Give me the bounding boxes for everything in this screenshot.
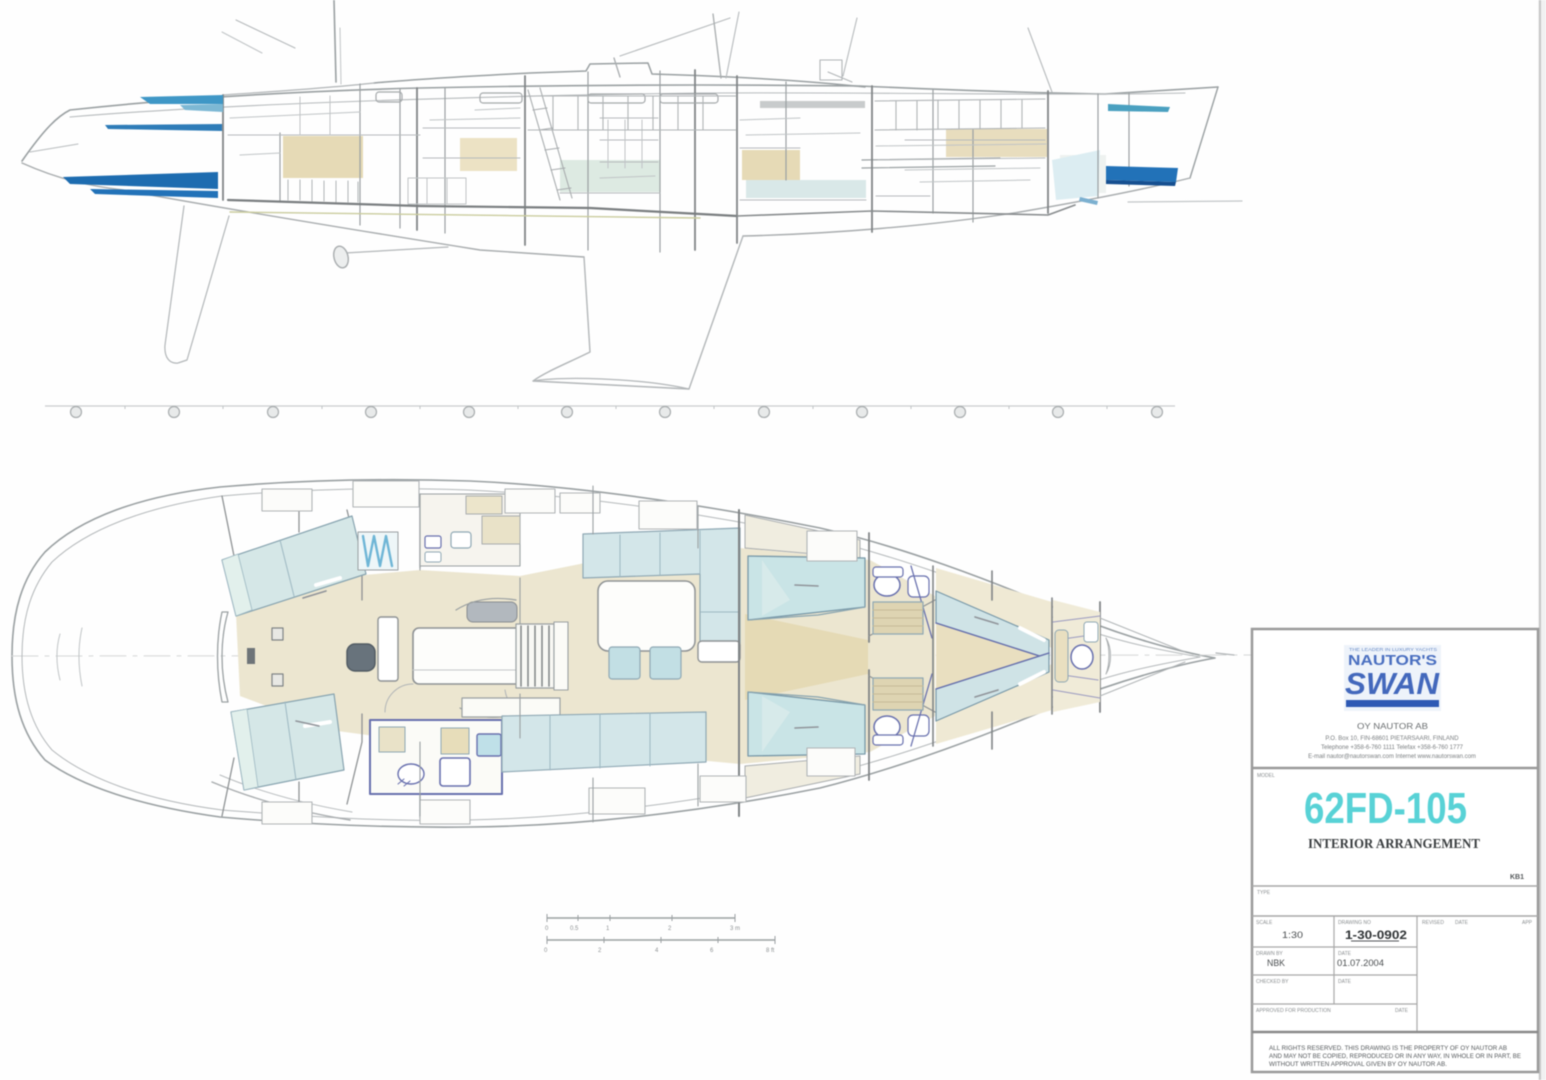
svg-text:SWAN: SWAN: [1345, 666, 1440, 701]
svg-text:Telephone +358-6-760 1111 T: Telephone +358-6-760 1111 Telefax +358-6…: [1321, 745, 1464, 751]
svg-text:8 ft: 8 ft: [766, 948, 775, 954]
svg-text:01.07.2004: 01.07.2004: [1337, 958, 1384, 968]
svg-text:MODEL: MODEL: [1257, 773, 1275, 779]
svg-text:1:30: 1:30: [1282, 930, 1303, 940]
svg-text:DRAWN BY: DRAWN BY: [1256, 951, 1283, 957]
svg-text:WITHOUT WRITTEN APPROVAL GIVEN: WITHOUT WRITTEN APPROVAL GIVEN BY OY NAU…: [1269, 1062, 1447, 1068]
svg-text:E-mail nautor@nautorswan.com: E-mail nautor@nautorswan.com Internet ww…: [1308, 754, 1476, 760]
svg-text:AND MAY NOT BE COPIED, REPRODU: AND MAY NOT BE COPIED, REPRODUCED OR IN …: [1269, 1054, 1521, 1060]
svg-text:6: 6: [710, 948, 714, 954]
svg-text:3 m: 3 m: [730, 926, 740, 932]
svg-text:DATE: DATE: [1455, 920, 1469, 926]
svg-text:1-30-0902: 1-30-0902: [1345, 928, 1407, 942]
svg-text:4: 4: [655, 948, 659, 954]
svg-text:2: 2: [598, 948, 602, 954]
svg-text:62FD-105: 62FD-105: [1304, 784, 1467, 833]
svg-text:OY NAUTOR AB: OY NAUTOR AB: [1357, 722, 1428, 731]
svg-text:0: 0: [544, 948, 548, 954]
svg-text:REVISED: REVISED: [1422, 920, 1444, 926]
svg-text:TYPE: TYPE: [1257, 890, 1271, 896]
svg-text:INTERIOR ARRANGEMENT: INTERIOR ARRANGEMENT: [1308, 837, 1481, 852]
svg-text:DRAWING NO: DRAWING NO: [1338, 920, 1371, 926]
svg-text:KB1: KB1: [1510, 874, 1524, 881]
svg-text:CHECKED BY: CHECKED BY: [1256, 979, 1289, 985]
svg-text:0.5: 0.5: [570, 926, 579, 932]
svg-text:NBK: NBK: [1267, 958, 1285, 968]
svg-text:0: 0: [545, 926, 549, 932]
svg-text:DATE: DATE: [1338, 951, 1352, 957]
svg-text:1: 1: [606, 926, 610, 932]
svg-text:DATE: DATE: [1338, 979, 1352, 985]
svg-text:APP: APP: [1522, 920, 1533, 926]
svg-text:2: 2: [668, 926, 672, 932]
svg-text:P.O. Box 10, FIN-68601 PIETARS: P.O. Box 10, FIN-68601 PIETARSAARI, FINL…: [1325, 736, 1459, 742]
svg-text:ALL RIGHTS RESERVED. THIS DRAW: ALL RIGHTS RESERVED. THIS DRAWING IS THE…: [1269, 1046, 1507, 1052]
svg-text:APPROVED FOR PRODUCTION: APPROVED FOR PRODUCTION: [1256, 1008, 1331, 1014]
svg-text:DATE: DATE: [1395, 1008, 1409, 1014]
svg-text:SCALE: SCALE: [1256, 920, 1273, 926]
